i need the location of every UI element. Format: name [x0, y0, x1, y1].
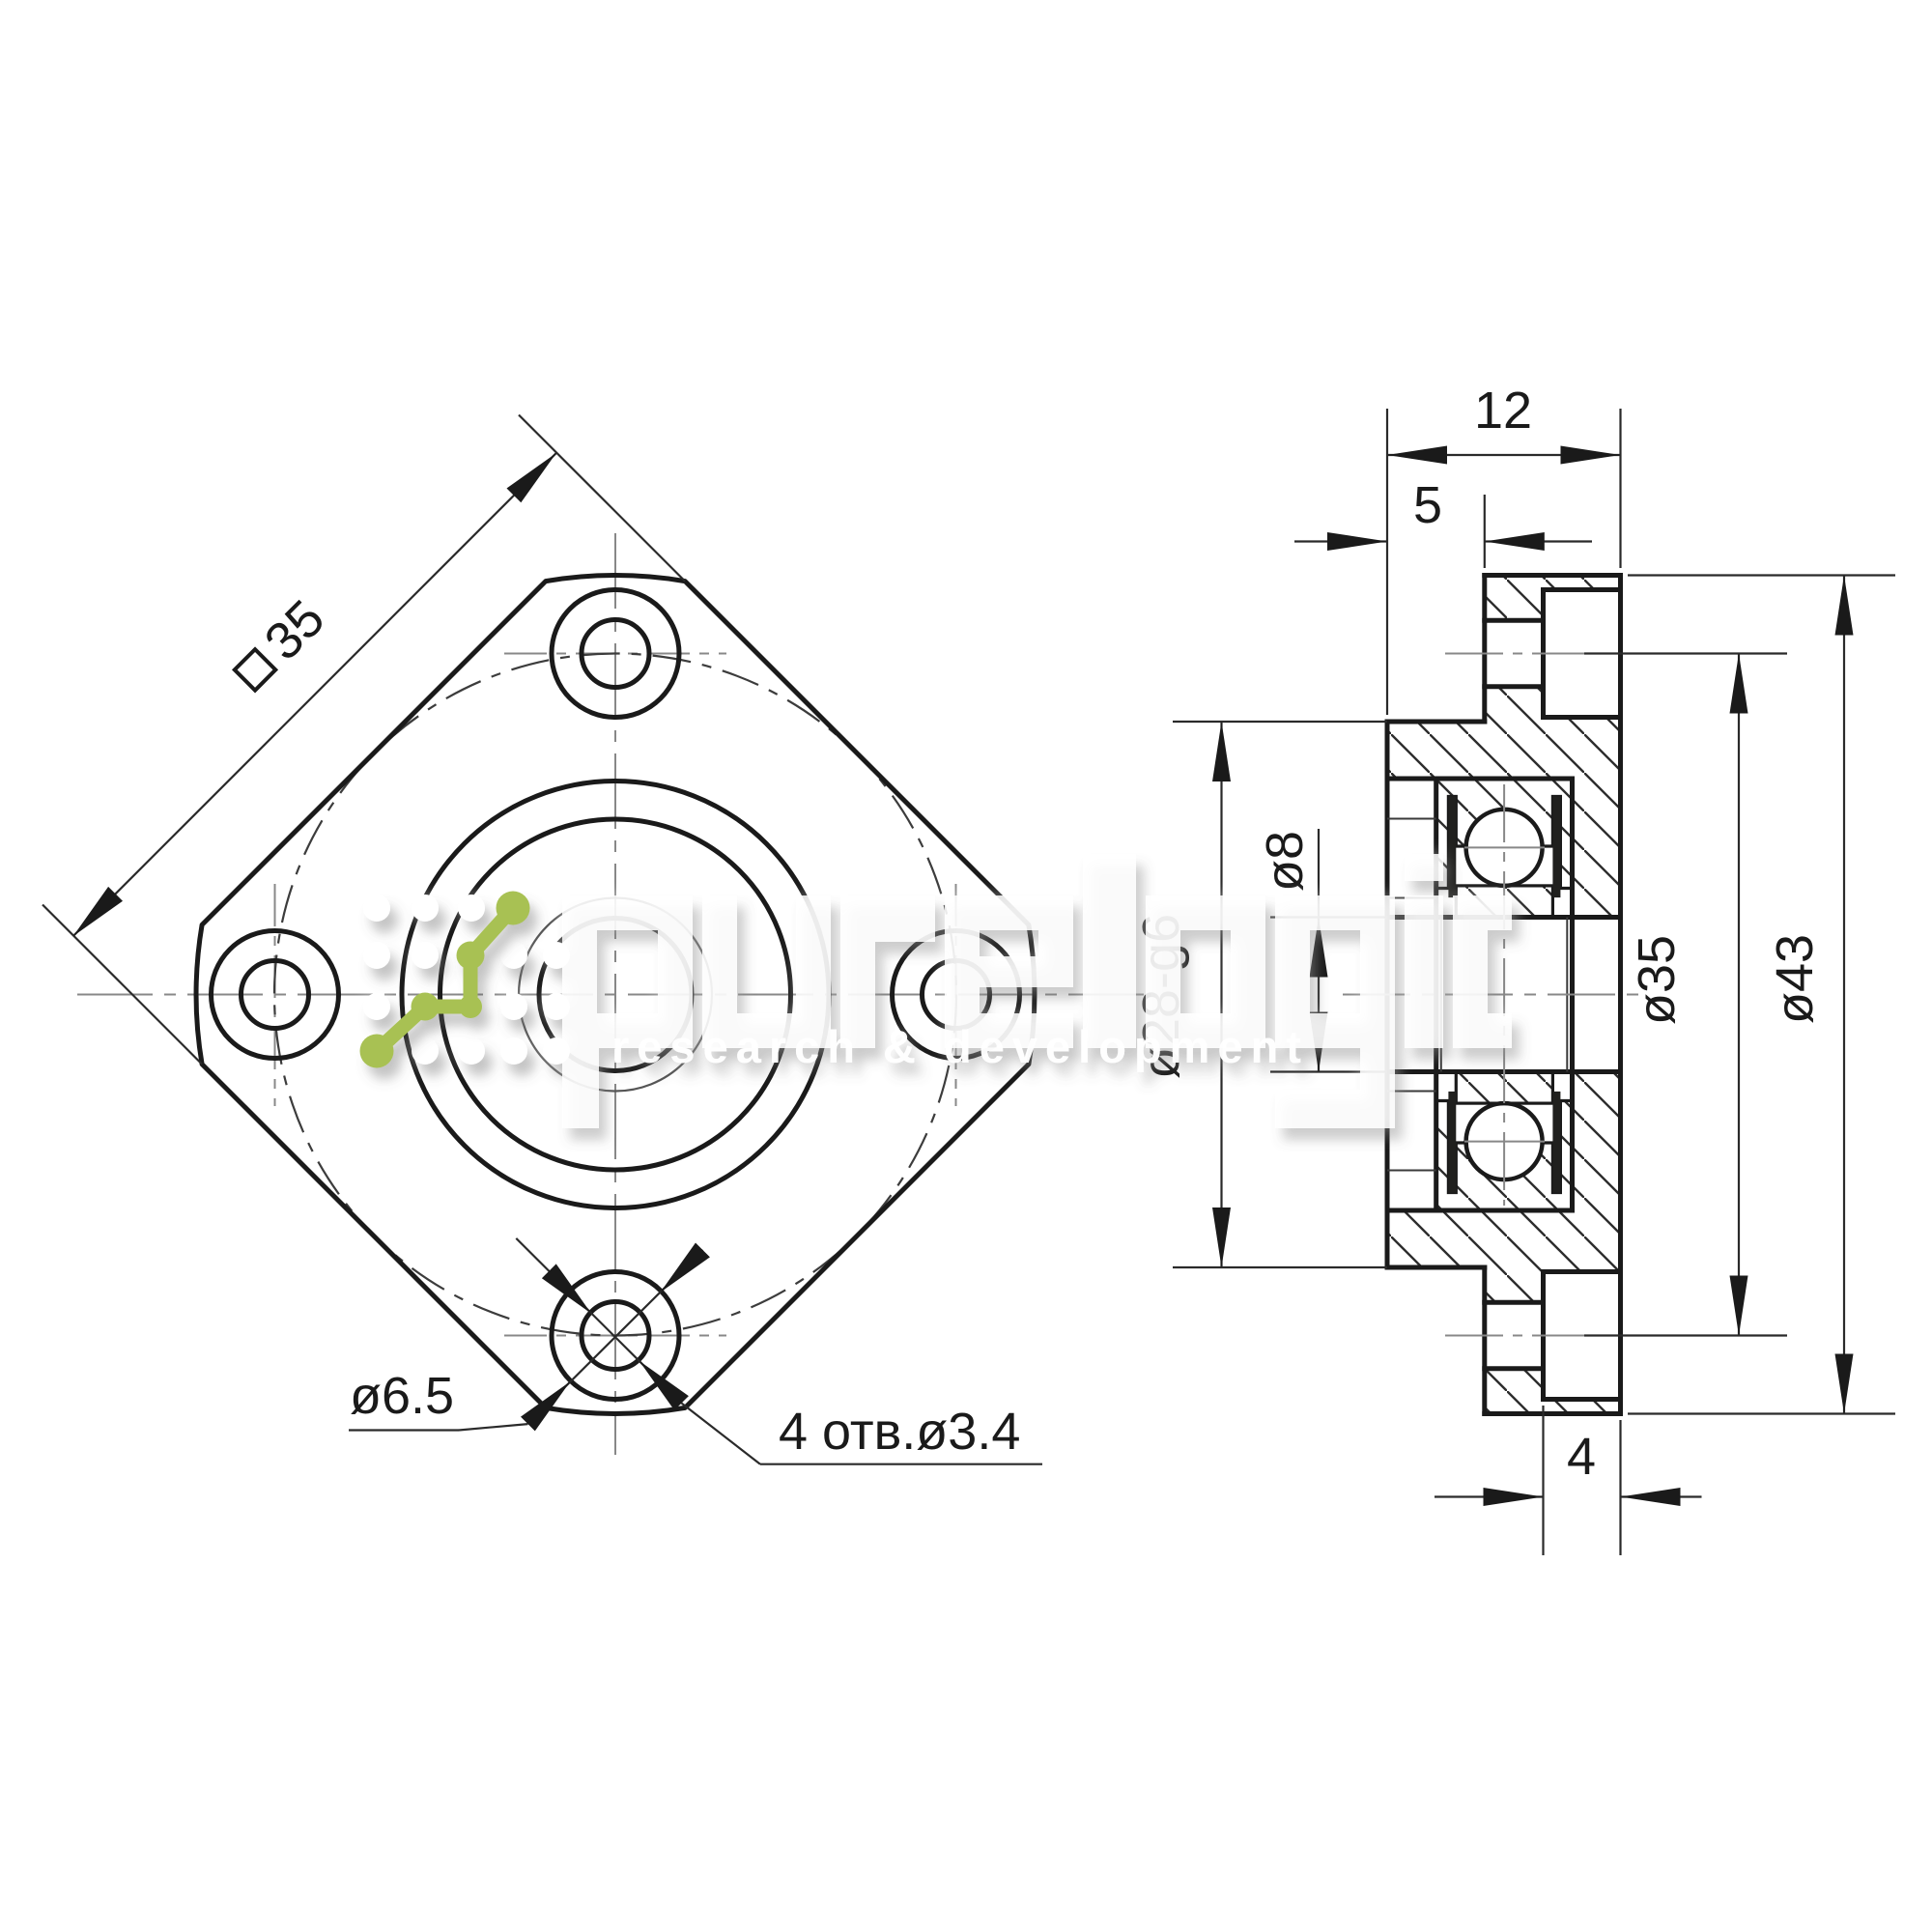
- svg-text:ø6.5: ø6.5: [350, 1367, 454, 1425]
- svg-text:ø35: ø35: [1628, 935, 1686, 1025]
- svg-text:12: 12: [1474, 382, 1532, 440]
- svg-text:research & development: research & development: [611, 1021, 1309, 1072]
- svg-text:ø8: ø8: [1256, 831, 1314, 892]
- svg-text:5: 5: [1413, 476, 1442, 534]
- svg-text:4 отв.ø3.4: 4 отв.ø3.4: [779, 1403, 1020, 1461]
- svg-text:4: 4: [1567, 1428, 1596, 1486]
- svg-text:ø43: ø43: [1766, 934, 1824, 1024]
